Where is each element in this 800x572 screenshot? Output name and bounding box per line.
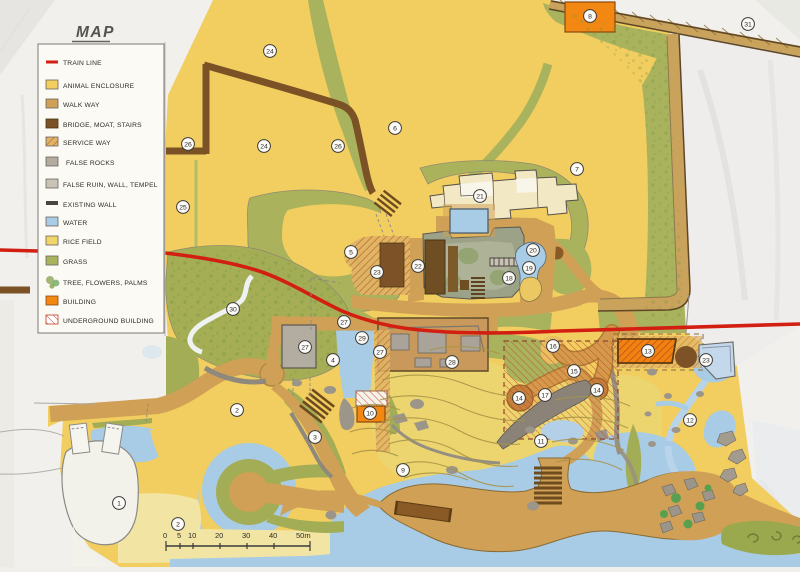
svg-text:30: 30 [229, 307, 237, 314]
svg-text:5: 5 [177, 531, 181, 540]
svg-text:12: 12 [686, 418, 694, 425]
svg-text:WATER: WATER [63, 220, 87, 227]
svg-text:21: 21 [476, 194, 484, 201]
svg-text:24: 24 [266, 49, 274, 56]
svg-text:0: 0 [163, 531, 167, 540]
svg-text:15: 15 [570, 369, 578, 376]
svg-text:11: 11 [537, 439, 544, 446]
svg-text:16: 16 [549, 344, 557, 351]
svg-text:23: 23 [702, 358, 710, 365]
svg-text:MAP: MAP [76, 24, 115, 41]
svg-text:9: 9 [401, 468, 405, 475]
svg-text:4: 4 [331, 358, 335, 365]
svg-text:GRASS: GRASS [63, 259, 88, 266]
svg-text:BUILDING: BUILDING [63, 299, 96, 306]
svg-text:20: 20 [529, 248, 537, 255]
svg-text:18: 18 [505, 276, 513, 283]
svg-text:6: 6 [393, 126, 397, 133]
svg-text:22: 22 [414, 264, 422, 271]
svg-text:27: 27 [301, 345, 309, 352]
svg-text:1: 1 [117, 501, 121, 508]
svg-text:WALK WAY: WALK WAY [63, 102, 100, 109]
svg-text:20: 20 [215, 531, 223, 540]
svg-text:40: 40 [269, 531, 277, 540]
svg-text:FALSE ROCKS: FALSE ROCKS [66, 160, 115, 167]
svg-text:26: 26 [334, 144, 342, 151]
svg-text:29: 29 [358, 336, 366, 343]
svg-text:2: 2 [235, 408, 239, 415]
svg-text:27: 27 [376, 350, 384, 357]
svg-text:24: 24 [260, 144, 268, 151]
svg-text:FALSE RUIN, WALL, TEMPEL: FALSE RUIN, WALL, TEMPEL [63, 182, 158, 189]
svg-text:26: 26 [184, 142, 192, 149]
svg-text:5: 5 [349, 250, 353, 257]
svg-text:ANIMAL ENCLOSURE: ANIMAL ENCLOSURE [63, 83, 135, 90]
svg-text:TRAIN LINE: TRAIN LINE [63, 60, 102, 67]
svg-text:10: 10 [366, 411, 374, 418]
svg-text:27: 27 [340, 320, 348, 327]
svg-text:SERVICE WAY: SERVICE WAY [63, 140, 111, 147]
svg-text:RICE FIELD: RICE FIELD [63, 239, 102, 246]
svg-text:3: 3 [313, 435, 317, 442]
svg-text:UNDERGROUND BUILDING: UNDERGROUND BUILDING [63, 318, 154, 325]
svg-text:50m: 50m [296, 531, 311, 540]
svg-text:7: 7 [575, 167, 579, 174]
svg-text:28: 28 [448, 360, 456, 367]
svg-text:TREE, FLOWERS, PALMS: TREE, FLOWERS, PALMS [63, 280, 148, 287]
svg-text:25: 25 [179, 205, 187, 212]
svg-text:31: 31 [744, 22, 752, 29]
svg-text:8: 8 [588, 14, 592, 21]
svg-text:14: 14 [593, 388, 601, 395]
svg-text:23: 23 [373, 270, 381, 277]
svg-text:2: 2 [176, 522, 180, 529]
svg-text:10: 10 [188, 531, 196, 540]
svg-text:19: 19 [525, 266, 533, 273]
svg-text:EXISTING WALL: EXISTING WALL [63, 202, 117, 209]
svg-text:BRIDGE, MOAT, STAIRS: BRIDGE, MOAT, STAIRS [63, 122, 142, 129]
svg-text:14: 14 [515, 396, 523, 403]
svg-text:17: 17 [541, 393, 549, 400]
svg-text:13: 13 [644, 349, 652, 356]
svg-text:30: 30 [242, 531, 250, 540]
